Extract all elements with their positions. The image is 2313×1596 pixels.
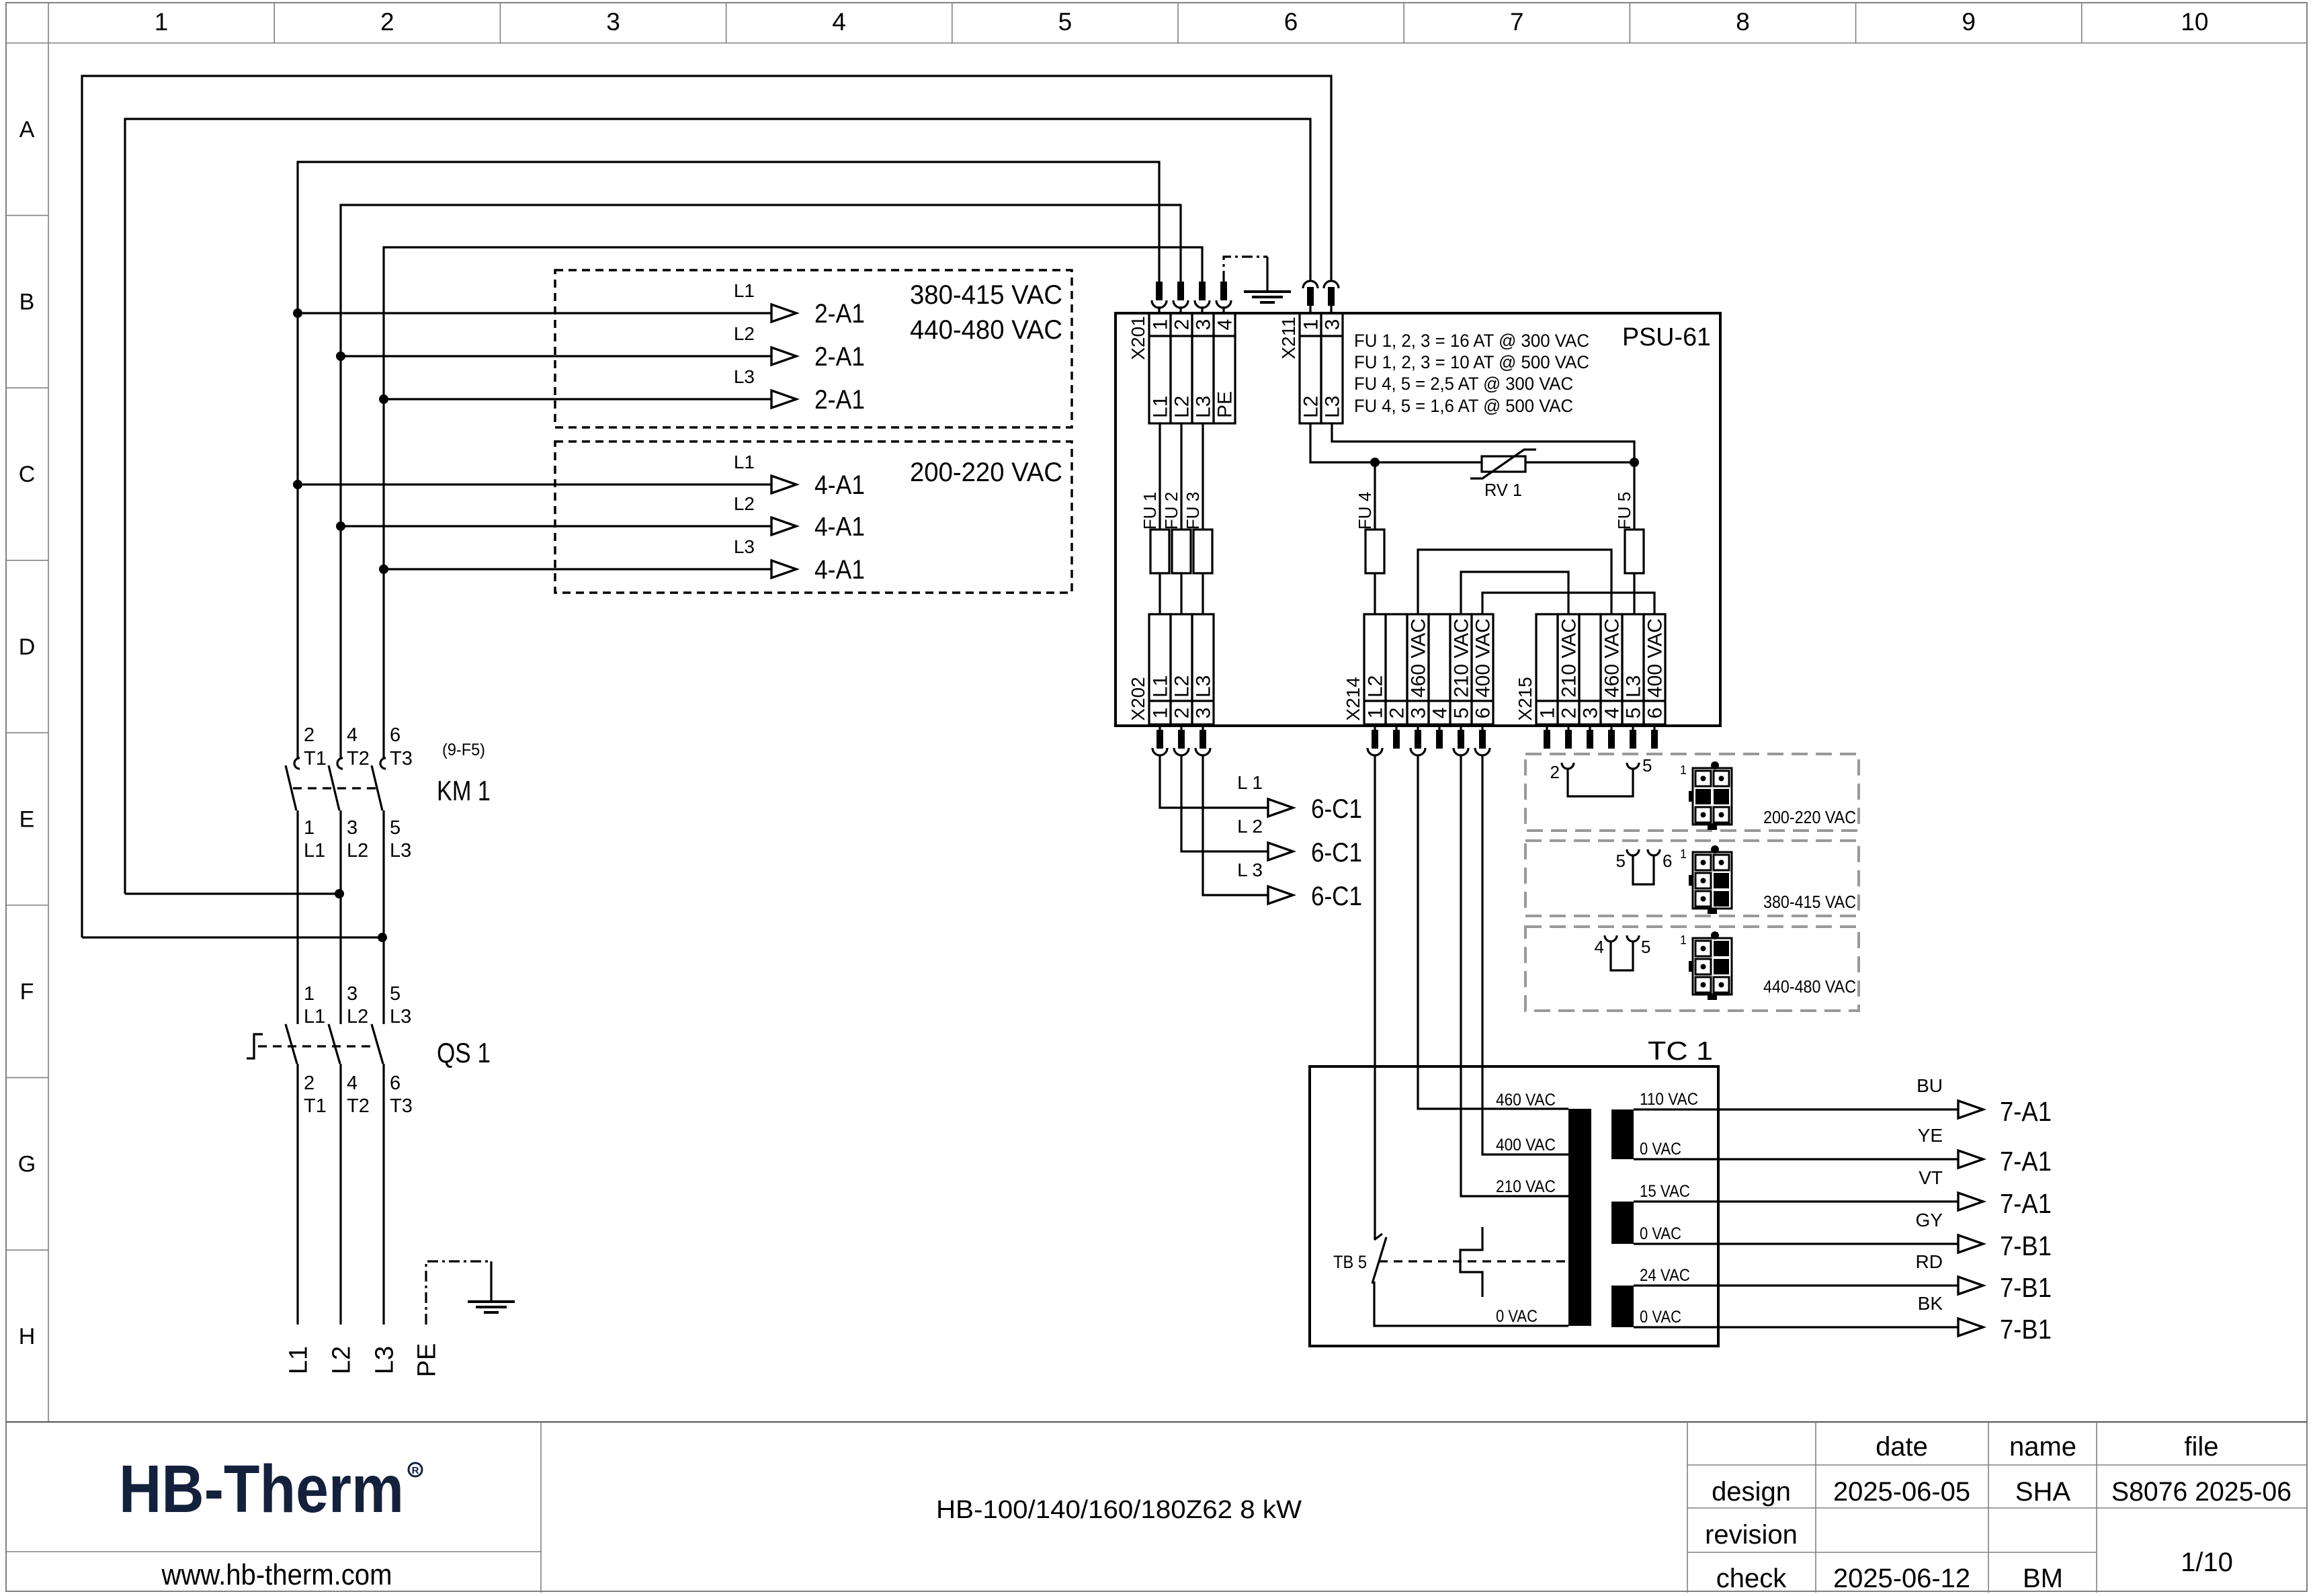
svg-text:FU 4, 5 = 2,5 AT @ 300 VAC: FU 4, 5 = 2,5 AT @ 300 VAC xyxy=(1354,374,1573,394)
svg-text:T2: T2 xyxy=(347,748,370,769)
svg-text:7-B1: 7-B1 xyxy=(2000,1230,2052,1261)
svg-text:L3: L3 xyxy=(370,1346,398,1374)
svg-text:L1: L1 xyxy=(734,280,755,301)
svg-text:5: 5 xyxy=(1616,851,1626,871)
svg-text:check: check xyxy=(1716,1564,1787,1593)
svg-text:4: 4 xyxy=(347,724,358,746)
svg-text:L2: L2 xyxy=(734,493,755,514)
svg-text:2: 2 xyxy=(1558,708,1581,719)
svg-text:5: 5 xyxy=(1642,755,1652,775)
svg-text:4: 4 xyxy=(1214,319,1236,331)
svg-text:T1: T1 xyxy=(304,1095,327,1117)
svg-text:revision: revision xyxy=(1705,1520,1798,1550)
svg-text:3: 3 xyxy=(606,8,620,36)
svg-text:440-480 VAC: 440-480 VAC xyxy=(910,315,1062,345)
svg-text:5: 5 xyxy=(390,817,401,839)
svg-text:L3: L3 xyxy=(1193,396,1215,418)
svg-text:L 2: L 2 xyxy=(1237,816,1263,837)
svg-text:7-B1: 7-B1 xyxy=(2000,1314,2052,1345)
svg-text:X202: X202 xyxy=(1128,677,1148,720)
svg-text:7-A1: 7-A1 xyxy=(2000,1096,2052,1127)
svg-text:400 VAC: 400 VAC xyxy=(1644,618,1667,698)
svg-text:3: 3 xyxy=(347,817,358,839)
svg-text:15 VAC: 15 VAC xyxy=(1640,1182,1690,1201)
svg-text:1: 1 xyxy=(1680,847,1687,861)
svg-text:3: 3 xyxy=(1193,708,1215,719)
svg-text:F: F xyxy=(20,979,34,1005)
svg-text:10: 10 xyxy=(2181,8,2208,36)
svg-text:460 VAC: 460 VAC xyxy=(1601,618,1624,698)
svg-text:4-A1: 4-A1 xyxy=(814,512,865,542)
svg-text:T1: T1 xyxy=(304,748,327,769)
svg-text:L3: L3 xyxy=(734,536,755,557)
svg-text:3: 3 xyxy=(1408,708,1430,719)
svg-text:L1: L1 xyxy=(284,1346,312,1374)
svg-text:400 VAC: 400 VAC xyxy=(1496,1136,1556,1154)
svg-text:6-C1: 6-C1 xyxy=(1311,882,1362,911)
svg-text:3: 3 xyxy=(1193,319,1215,331)
svg-text:4: 4 xyxy=(347,1073,358,1094)
svg-text:1/10: 1/10 xyxy=(2181,1548,2233,1577)
svg-text:440-480 VAC: 440-480 VAC xyxy=(1763,976,1856,997)
svg-text:460 VAC: 460 VAC xyxy=(1496,1091,1556,1109)
svg-text:VT: VT xyxy=(1919,1167,1943,1188)
svg-text:QS 1: QS 1 xyxy=(437,1037,491,1068)
svg-text:RD: RD xyxy=(1916,1251,1943,1272)
svg-text:24 VAC: 24 VAC xyxy=(1640,1266,1690,1285)
svg-text:L 3: L 3 xyxy=(1237,859,1263,880)
svg-text:T2: T2 xyxy=(347,1095,370,1117)
svg-text:H: H xyxy=(19,1324,36,1349)
svg-text:GY: GY xyxy=(1916,1210,1943,1230)
svg-text:8: 8 xyxy=(1736,8,1750,36)
svg-text:1: 1 xyxy=(1365,708,1387,719)
svg-text:6-C1: 6-C1 xyxy=(1311,794,1362,824)
svg-text:210 VAC: 210 VAC xyxy=(1451,618,1473,698)
svg-text:380-415 VAC: 380-415 VAC xyxy=(910,280,1062,310)
svg-text:L3: L3 xyxy=(390,1006,411,1027)
svg-text:460 VAC: 460 VAC xyxy=(1408,618,1430,698)
svg-text:2025-06-05: 2025-06-05 xyxy=(1833,1477,1970,1507)
svg-text:1: 1 xyxy=(155,8,169,36)
svg-text:6: 6 xyxy=(390,1073,401,1094)
svg-text:L1: L1 xyxy=(304,1006,325,1027)
svg-text:L2: L2 xyxy=(1365,675,1387,698)
svg-text:5: 5 xyxy=(390,983,401,1005)
svg-text:G: G xyxy=(18,1152,36,1177)
svg-text:L2: L2 xyxy=(1300,396,1322,418)
svg-text:380-415 VAC: 380-415 VAC xyxy=(1763,892,1856,912)
svg-text:7-A1: 7-A1 xyxy=(2000,1188,2052,1219)
svg-text:PE: PE xyxy=(413,1343,441,1378)
svg-text:7: 7 xyxy=(1510,8,1524,36)
svg-text:D: D xyxy=(19,634,36,660)
svg-text:L3: L3 xyxy=(1623,675,1645,698)
svg-text:L 1: L 1 xyxy=(1237,772,1263,793)
svg-text:X215: X215 xyxy=(1515,677,1536,720)
svg-text:E: E xyxy=(19,806,35,832)
svg-text:FU 1, 2, 3 = 16 AT @ 300 VAC: FU 1, 2, 3 = 16 AT @ 300 VAC xyxy=(1354,331,1589,351)
svg-text:0 VAC: 0 VAC xyxy=(1640,1140,1681,1159)
svg-text:HB-Therm: HB-Therm xyxy=(119,1452,404,1527)
svg-text:date: date xyxy=(1876,1432,1928,1462)
svg-text:4-A1: 4-A1 xyxy=(814,555,865,585)
svg-text:7-A1: 7-A1 xyxy=(2000,1146,2052,1177)
svg-text:1: 1 xyxy=(304,817,314,839)
svg-text:3: 3 xyxy=(1322,319,1344,331)
svg-text:200-220 VAC: 200-220 VAC xyxy=(1763,807,1856,827)
svg-text:5: 5 xyxy=(1641,937,1650,957)
svg-text:KM 1: KM 1 xyxy=(437,775,491,806)
svg-text:2: 2 xyxy=(304,724,314,746)
svg-text:BK: BK xyxy=(1918,1293,1943,1314)
svg-text:4: 4 xyxy=(1601,708,1624,719)
svg-text:2: 2 xyxy=(1171,319,1193,331)
svg-text:L1: L1 xyxy=(304,840,325,862)
svg-text:5: 5 xyxy=(1451,708,1473,719)
svg-text:2: 2 xyxy=(380,8,394,36)
svg-text:4-A1: 4-A1 xyxy=(814,470,865,500)
svg-text:200-220 VAC: 200-220 VAC xyxy=(910,458,1062,487)
svg-text:L3: L3 xyxy=(734,366,755,387)
svg-text:2: 2 xyxy=(304,1073,314,1094)
svg-text:X211: X211 xyxy=(1278,317,1299,359)
svg-text:L2: L2 xyxy=(1171,675,1193,698)
svg-text:L3: L3 xyxy=(1193,675,1215,698)
svg-text:FU 1, 2, 3 = 10 AT @ 500 VAC: FU 1, 2, 3 = 10 AT @ 500 VAC xyxy=(1354,352,1589,372)
svg-text:210 VAC: 210 VAC xyxy=(1496,1177,1556,1196)
svg-text:1: 1 xyxy=(304,983,314,1005)
svg-text:9: 9 xyxy=(1962,8,1976,36)
svg-text:S8076 2025-06: S8076 2025-06 xyxy=(2111,1477,2291,1507)
svg-text:400 VAC: 400 VAC xyxy=(1472,618,1495,698)
svg-text:L1: L1 xyxy=(734,452,755,472)
svg-text:7-B1: 7-B1 xyxy=(2000,1272,2052,1303)
svg-text:RV 1: RV 1 xyxy=(1484,480,1522,500)
svg-text:TC 1: TC 1 xyxy=(1648,1037,1713,1066)
svg-text:0 VAC: 0 VAC xyxy=(1640,1224,1681,1243)
svg-text:L3: L3 xyxy=(390,840,411,862)
svg-text:2: 2 xyxy=(1550,762,1560,782)
svg-text:SHA: SHA xyxy=(2015,1477,2071,1507)
svg-text:110 VAC: 110 VAC xyxy=(1640,1090,1698,1109)
svg-text:C: C xyxy=(19,462,36,487)
svg-text:design: design xyxy=(1712,1477,1791,1507)
svg-text:X214: X214 xyxy=(1343,677,1363,720)
svg-text:(9-F5): (9-F5) xyxy=(442,741,485,759)
svg-text:L2: L2 xyxy=(347,1006,368,1027)
svg-text:PE: PE xyxy=(1214,391,1236,418)
svg-text:FU 1: FU 1 xyxy=(1140,492,1160,530)
svg-text:2-A1: 2-A1 xyxy=(814,385,865,415)
svg-text:FU 5: FU 5 xyxy=(1614,492,1634,530)
svg-text:A: A xyxy=(19,117,35,142)
svg-text:L1: L1 xyxy=(1150,675,1172,698)
svg-text:2025-06-12: 2025-06-12 xyxy=(1833,1564,1970,1593)
svg-text:R: R xyxy=(412,1465,419,1476)
svg-text:L2: L2 xyxy=(347,840,368,862)
svg-text:FU 4, 5 = 1,6 AT @ 500 VAC: FU 4, 5 = 1,6 AT @ 500 VAC xyxy=(1354,396,1573,416)
svg-text:L3: L3 xyxy=(1322,396,1344,418)
svg-text:T3: T3 xyxy=(390,1095,413,1117)
svg-text:name: name xyxy=(2009,1432,2076,1462)
svg-text:TB 5: TB 5 xyxy=(1333,1252,1367,1272)
svg-text:L2: L2 xyxy=(734,323,755,344)
svg-text:5: 5 xyxy=(1058,8,1073,36)
svg-text:HB-100/140/160/180Z62 8 kW: HB-100/140/160/180Z62 8 kW xyxy=(936,1496,1302,1524)
svg-text:1: 1 xyxy=(1680,933,1687,947)
svg-text:2-A1: 2-A1 xyxy=(814,299,865,329)
svg-text:BM: BM xyxy=(2023,1564,2063,1593)
svg-text:FU 4: FU 4 xyxy=(1355,492,1375,530)
svg-text:PSU-61: PSU-61 xyxy=(1622,323,1711,351)
svg-text:BU: BU xyxy=(1917,1075,1943,1096)
svg-text:FU 3: FU 3 xyxy=(1183,492,1203,530)
svg-text:B: B xyxy=(19,290,35,315)
svg-text:6: 6 xyxy=(390,724,401,746)
svg-text:6-C1: 6-C1 xyxy=(1311,838,1362,868)
svg-text:L1: L1 xyxy=(1150,396,1172,418)
svg-text:2-A1: 2-A1 xyxy=(814,342,865,372)
svg-text:L2: L2 xyxy=(327,1346,355,1374)
svg-text:1: 1 xyxy=(1300,319,1322,331)
svg-text:X201: X201 xyxy=(1128,316,1148,360)
svg-text:3: 3 xyxy=(1580,708,1602,719)
svg-text:3: 3 xyxy=(347,983,358,1005)
svg-text:www.hb-therm.com: www.hb-therm.com xyxy=(161,1558,392,1591)
svg-text:1: 1 xyxy=(1150,319,1172,331)
svg-text:0 VAC: 0 VAC xyxy=(1496,1307,1538,1326)
svg-text:6: 6 xyxy=(1284,8,1298,36)
svg-text:4: 4 xyxy=(832,8,846,36)
svg-text:file: file xyxy=(2184,1432,2218,1462)
svg-text:1: 1 xyxy=(1537,708,1559,719)
svg-text:2: 2 xyxy=(1171,708,1193,719)
svg-text:0 VAC: 0 VAC xyxy=(1640,1308,1681,1327)
svg-text:T3: T3 xyxy=(390,748,413,769)
svg-text:L2: L2 xyxy=(1171,396,1193,418)
svg-text:6: 6 xyxy=(1644,708,1667,719)
svg-text:210 VAC: 210 VAC xyxy=(1558,618,1581,698)
svg-text:FU 2: FU 2 xyxy=(1161,492,1181,530)
svg-text:4: 4 xyxy=(1429,708,1452,719)
svg-text:6: 6 xyxy=(1663,851,1672,871)
svg-text:YE: YE xyxy=(1918,1125,1943,1146)
svg-text:2: 2 xyxy=(1386,708,1408,719)
svg-text:4: 4 xyxy=(1595,937,1604,957)
svg-text:5: 5 xyxy=(1623,708,1645,719)
svg-text:6: 6 xyxy=(1472,708,1495,719)
svg-text:1: 1 xyxy=(1150,708,1172,719)
svg-text:1: 1 xyxy=(1680,763,1687,777)
